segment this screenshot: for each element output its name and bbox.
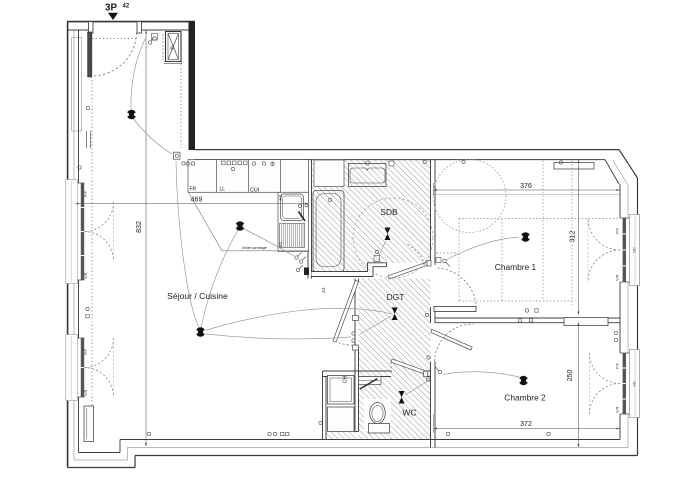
svg-text:469: 469	[191, 197, 203, 204]
svg-text:Chambre 2: Chambre 2	[504, 393, 546, 403]
svg-text:3P: 3P	[105, 3, 117, 14]
svg-text:VC: VC	[632, 381, 637, 387]
svg-text:SDB: SDB	[380, 207, 398, 217]
svg-text:832: 832	[136, 221, 143, 233]
svg-text:LL: LL	[220, 186, 226, 192]
svg-text:A1: A1	[321, 287, 326, 293]
svg-text:P.F: P.F	[615, 227, 620, 233]
svg-text:DGT: DGT	[387, 292, 405, 302]
svg-text:CH: CH	[343, 376, 349, 384]
svg-text:P.F: P.F	[83, 348, 88, 354]
svg-text:limite carrelage: limite carrelage	[242, 246, 266, 250]
svg-text:Chambre 1: Chambre 1	[495, 262, 537, 272]
svg-text:A1: A1	[278, 241, 283, 247]
svg-text:CUI: CUI	[250, 187, 259, 193]
svg-text:P.F: P.F	[615, 362, 620, 368]
svg-text:FR: FR	[190, 187, 197, 193]
svg-text:V.R: V.R	[615, 407, 620, 413]
svg-text:312: 312	[570, 231, 577, 243]
svg-text:VC: VC	[632, 247, 637, 253]
svg-text:A2: A2	[278, 194, 283, 200]
svg-text:V.R: V.R	[615, 275, 620, 281]
svg-text:P.F: P.F	[83, 190, 88, 196]
svg-text:Séjour / Cuisine: Séjour / Cuisine	[167, 291, 228, 301]
svg-text:376: 376	[520, 183, 532, 190]
svg-text:372: 372	[520, 421, 532, 428]
svg-text:V.R: V.R	[83, 390, 88, 396]
svg-text:EL: EL	[170, 44, 175, 50]
svg-text:WC: WC	[402, 408, 416, 418]
svg-text:V.R: V.R	[83, 273, 88, 279]
svg-text:42: 42	[123, 4, 130, 10]
svg-text:250: 250	[567, 370, 574, 382]
